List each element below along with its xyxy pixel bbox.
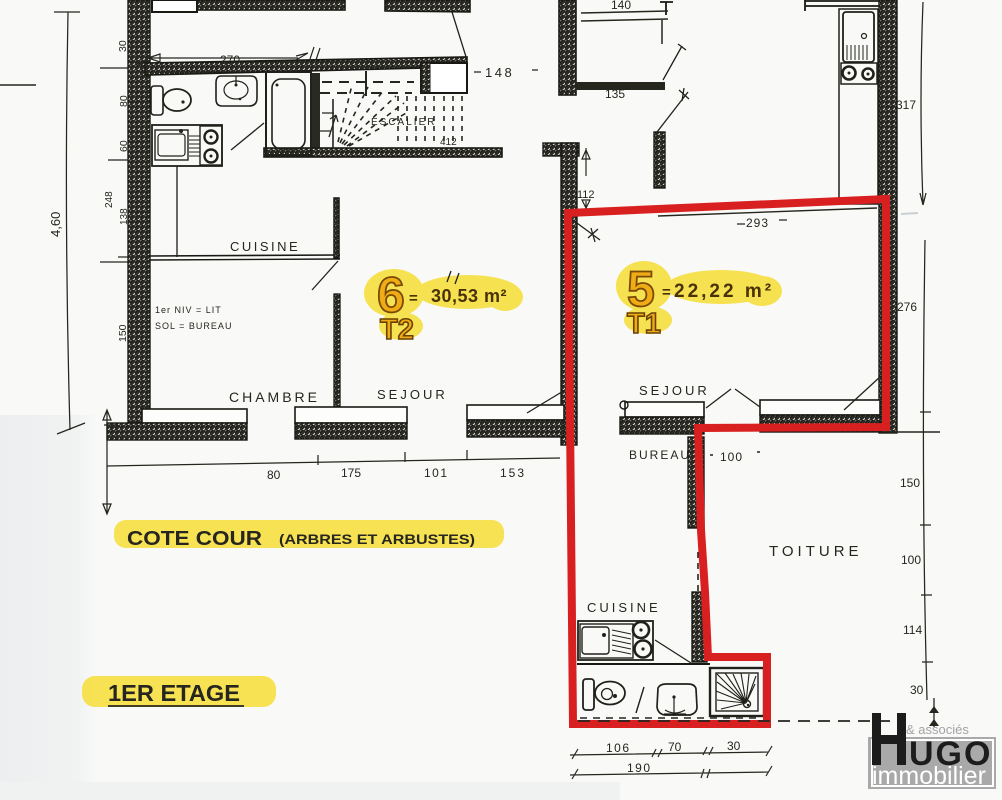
svg-text:150: 150 [117, 324, 129, 342]
svg-text:248: 248 [104, 191, 115, 208]
svg-text:30,53 m²: 30,53 m² [431, 286, 507, 306]
svg-text:70: 70 [668, 740, 682, 754]
svg-text:ESCALIER: ESCALIER [371, 117, 436, 128]
svg-text:COTE COUR: COTE COUR [127, 528, 263, 550]
svg-text:SOL = BUREAU: SOL = BUREAU [155, 321, 232, 331]
svg-text:190: 190 [627, 761, 652, 775]
svg-text:=: = [409, 290, 418, 307]
svg-text:80: 80 [267, 468, 281, 482]
svg-text:101: 101 [424, 466, 449, 480]
svg-text:T2: T2 [380, 314, 414, 346]
svg-text:TOITURE: TOITURE [769, 543, 863, 560]
svg-text:100: 100 [720, 450, 743, 464]
svg-text:1ER ETAGE: 1ER ETAGE [108, 680, 240, 706]
svg-text:CUISINE: CUISINE [587, 600, 661, 615]
svg-text:140: 140 [611, 0, 631, 12]
svg-text:276: 276 [897, 300, 917, 314]
svg-text:=: = [662, 284, 671, 301]
svg-text:138: 138 [119, 208, 130, 225]
svg-text:150: 150 [900, 476, 920, 490]
svg-text:T1: T1 [627, 308, 661, 340]
svg-text:1er NIV = LIT: 1er NIV = LIT [155, 305, 222, 315]
svg-text:CUISINE: CUISINE [230, 239, 300, 254]
svg-text:SEJOUR: SEJOUR [639, 383, 710, 398]
svg-text:175: 175 [341, 466, 361, 480]
svg-text:30: 30 [910, 683, 924, 697]
svg-text:(ARBRES ET ARBUSTES): (ARBRES ET ARBUSTES) [279, 531, 475, 547]
svg-text:135: 135 [605, 87, 625, 101]
svg-text:22,22 m²: 22,22 m² [674, 281, 774, 302]
svg-text:60: 60 [118, 140, 130, 152]
svg-text:SEJOUR: SEJOUR [377, 387, 448, 402]
svg-text:106: 106 [606, 741, 631, 755]
svg-text:293: 293 [746, 216, 769, 230]
svg-text:153: 153 [500, 466, 526, 480]
svg-text:BUREAU: BUREAU [629, 448, 691, 462]
svg-text:80: 80 [118, 95, 130, 107]
svg-text:112: 112 [577, 189, 595, 201]
svg-text:114: 114 [903, 623, 922, 637]
svg-text:4,60: 4,60 [48, 212, 63, 237]
svg-text:412: 412 [440, 137, 457, 148]
svg-text:148: 148 [485, 65, 514, 80]
svg-text:100: 100 [901, 553, 921, 567]
svg-text:317: 317 [896, 98, 916, 112]
svg-text:immobilier: immobilier [872, 762, 986, 790]
svg-text:CHAMBRE: CHAMBRE [229, 389, 320, 405]
svg-text:270: 270 [220, 53, 240, 67]
svg-text:30: 30 [117, 40, 129, 52]
svg-text:30: 30 [727, 739, 741, 753]
